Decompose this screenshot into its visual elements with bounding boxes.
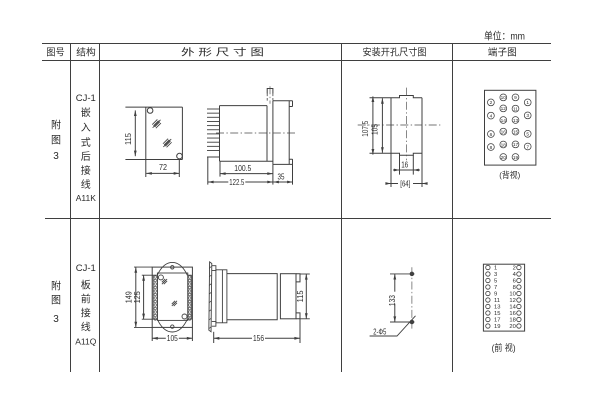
svg-text:A11Q: A11Q (75, 337, 96, 347)
svg-text:3: 3 (53, 151, 59, 162)
svg-text:入: 入 (81, 123, 91, 134)
svg-text:14: 14 (509, 305, 516, 311)
svg-text:3: 3 (53, 314, 59, 325)
svg-text:100.5: 100.5 (234, 163, 251, 173)
svg-text:单位：mm: 单位：mm (484, 30, 525, 43)
svg-text:8: 8 (490, 145, 493, 151)
svg-text:CJ-1: CJ-1 (76, 263, 96, 274)
svg-text:20: 20 (509, 324, 515, 330)
svg-text:122.5: 122.5 (229, 177, 244, 187)
svg-text:(前 视): (前 视) (492, 342, 516, 353)
svg-text:后: 后 (81, 151, 91, 163)
svg-text:结构: 结构 (76, 47, 96, 59)
svg-text:6: 6 (490, 132, 493, 138)
svg-text:端子图: 端子图 (488, 47, 517, 59)
svg-text:35: 35 (278, 171, 285, 181)
svg-text:2-Φ5: 2-Φ5 (373, 326, 386, 336)
svg-text:8: 8 (513, 285, 516, 291)
svg-text:18: 18 (501, 142, 507, 148)
svg-text:2: 2 (513, 266, 516, 272)
svg-text:105: 105 (370, 124, 380, 135)
svg-text:外 形 尺 寸 图: 外 形 尺 寸 图 (181, 47, 264, 59)
svg-text:(背视): (背视) (499, 170, 520, 180)
svg-text:前: 前 (81, 293, 91, 306)
svg-text:105: 105 (167, 333, 178, 343)
svg-text:13: 13 (513, 118, 519, 124)
svg-text:10: 10 (509, 292, 515, 298)
svg-text:9: 9 (494, 292, 497, 298)
svg-text:1: 1 (494, 266, 497, 272)
svg-text:板: 板 (81, 279, 91, 292)
svg-text:11: 11 (494, 298, 500, 304)
svg-text:7: 7 (494, 285, 497, 291)
svg-text:15: 15 (494, 311, 500, 317)
svg-text:附: 附 (51, 119, 61, 132)
svg-text:图: 图 (51, 295, 61, 307)
svg-text:15: 15 (513, 129, 519, 135)
svg-text:14: 14 (501, 118, 507, 124)
svg-text:附: 附 (51, 280, 61, 293)
svg-text:20: 20 (501, 155, 507, 161)
svg-text:1: 1 (526, 100, 529, 106)
svg-text:CJ-1: CJ-1 (76, 93, 96, 104)
svg-text:17: 17 (513, 142, 519, 148)
svg-text:12: 12 (509, 298, 515, 304)
svg-text:16: 16 (401, 160, 408, 170)
svg-text:安装开孔尺寸图: 安装开孔尺寸图 (363, 47, 427, 59)
svg-text:式: 式 (81, 136, 91, 149)
svg-text:图号: 图号 (46, 48, 65, 59)
svg-text:115: 115 (123, 133, 133, 145)
svg-text:125: 125 (132, 291, 142, 303)
svg-text:A11K: A11K (76, 193, 96, 203)
svg-text:19: 19 (513, 155, 519, 161)
svg-text:线: 线 (81, 321, 91, 334)
svg-text:19: 19 (494, 324, 500, 330)
svg-text:3: 3 (494, 272, 497, 278)
svg-text:6: 6 (513, 279, 516, 285)
svg-text:[64]: [64] (400, 178, 410, 188)
svg-text:18: 18 (509, 318, 515, 324)
svg-text:2: 2 (490, 100, 493, 106)
svg-text:7: 7 (526, 144, 529, 150)
svg-text:13: 13 (494, 305, 500, 311)
svg-text:嵌: 嵌 (81, 107, 91, 119)
svg-text:5: 5 (494, 279, 497, 285)
svg-text:72: 72 (159, 162, 167, 172)
svg-text:16: 16 (509, 311, 515, 317)
svg-text:133: 133 (387, 295, 397, 306)
svg-text:156: 156 (253, 333, 264, 343)
svg-text:5: 5 (526, 132, 529, 138)
svg-text:接: 接 (81, 164, 91, 177)
svg-text:线: 线 (81, 178, 91, 191)
svg-text:115: 115 (295, 290, 305, 302)
svg-text:9: 9 (514, 95, 517, 101)
svg-text:4: 4 (490, 113, 493, 119)
svg-text:10: 10 (501, 95, 507, 101)
svg-text:图: 图 (51, 135, 61, 147)
svg-text:11: 11 (513, 106, 518, 112)
svg-text:107.5: 107.5 (360, 121, 370, 137)
svg-text:接: 接 (81, 307, 91, 320)
svg-text:12: 12 (501, 106, 507, 112)
svg-text:17: 17 (494, 318, 500, 324)
svg-text:3: 3 (526, 113, 529, 119)
svg-text:16: 16 (501, 129, 507, 135)
